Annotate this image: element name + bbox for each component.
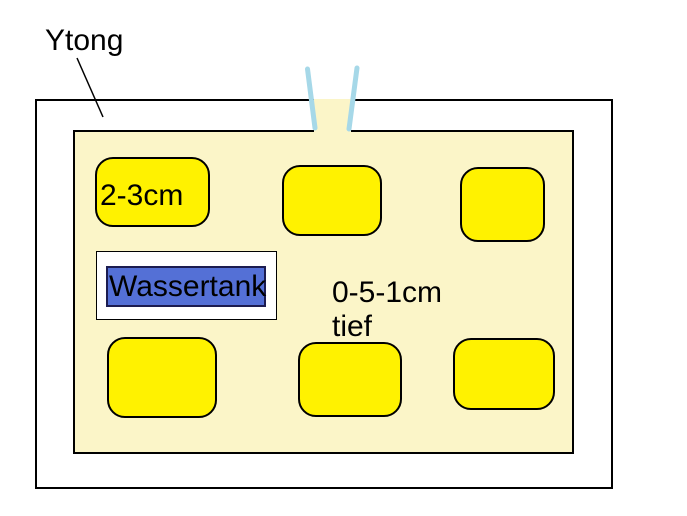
pocket-depth-label: 2-3cm — [97, 159, 208, 212]
depth-note-line1: 0-5-1cm — [332, 276, 442, 310]
wassertank-label: Wassertank — [108, 272, 266, 302]
wassertank-text-selection: Wassertank — [106, 266, 266, 307]
depth-note: 0-5-1cm tief — [332, 276, 442, 344]
pocket-bottom-left — [107, 337, 217, 418]
depth-note-line2: tief — [332, 310, 442, 344]
pocket-top-middle — [282, 165, 382, 236]
diagram-canvas: 2-3cm Ytong Wassertank 0-5-1cm tief — [0, 0, 687, 516]
wassertank-textbox: Wassertank — [96, 251, 277, 320]
pocket-top-right — [460, 167, 545, 242]
fill-channel — [314, 99, 351, 134]
ytong-label: Ytong — [45, 25, 123, 57]
pocket-bottom-right — [453, 338, 555, 410]
pocket-bottom-middle — [298, 342, 402, 417]
pocket-top-left: 2-3cm — [95, 157, 210, 227]
